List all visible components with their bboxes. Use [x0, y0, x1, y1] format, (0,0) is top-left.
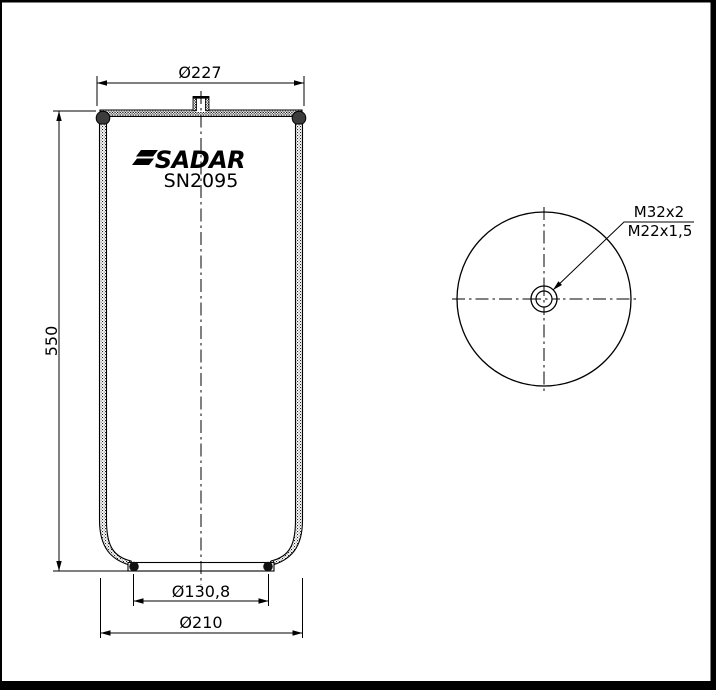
brand-logo-icon: [132, 159, 154, 166]
part-number: SN2095: [164, 170, 239, 192]
thread-size-primary: M32x2: [634, 203, 684, 221]
dimension-label: 550: [42, 326, 61, 357]
technical-drawing: SADAR SN2095 Ø227 550 Ø13: [0, 0, 716, 690]
drawing-frame: [0, 0, 716, 690]
dimension-height: 550: [42, 111, 128, 571]
top-bead-left: [96, 111, 110, 125]
top-view: M32x2 M22x1,5: [452, 203, 694, 391]
top-bead-right: [292, 111, 306, 125]
thread-size-secondary: M22x1,5: [628, 222, 693, 240]
air-fitting-left-wall: [193, 98, 197, 111]
dimension-label: Ø210: [179, 613, 222, 632]
drawing-sheet: SADAR SN2095 Ø227 550 Ø13: [0, 0, 716, 690]
air-fitting-right-wall: [205, 98, 209, 111]
thread-callout: M32x2 M22x1,5: [553, 203, 694, 290]
bottom-bead-right: [263, 562, 273, 572]
side-view: SADAR SN2095 Ø227 550 Ø13: [42, 63, 306, 638]
bellows-left-wall: [100, 124, 134, 566]
dimension-label: Ø130,8: [172, 582, 230, 601]
dimension-label: Ø227: [178, 63, 221, 82]
bellows-right-wall: [269, 124, 303, 566]
bottom-bead-left: [129, 562, 139, 572]
